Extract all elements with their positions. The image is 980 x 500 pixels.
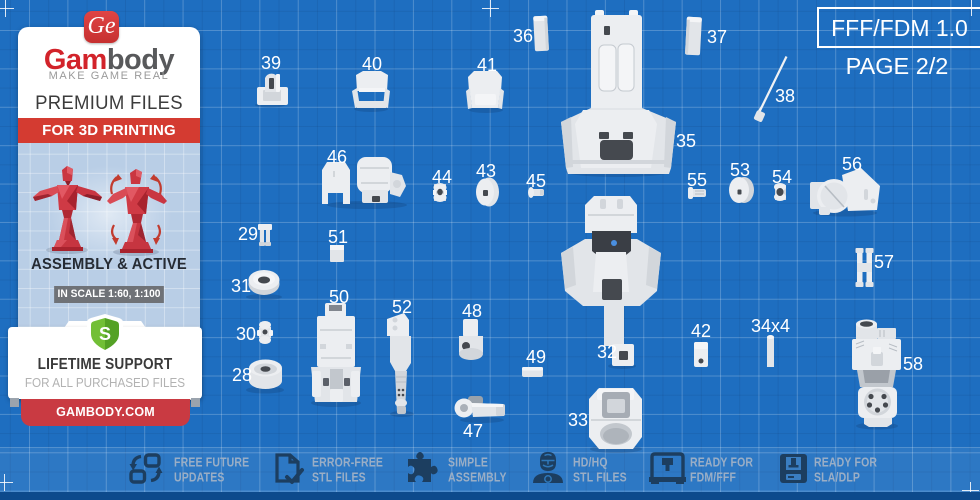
svg-text:53: 53 <box>730 160 750 180</box>
svg-text:28: 28 <box>232 365 252 385</box>
svg-text:50: 50 <box>329 287 349 307</box>
svg-text:37: 37 <box>707 27 727 47</box>
svg-text:57: 57 <box>874 252 894 272</box>
svg-text:49: 49 <box>526 347 546 367</box>
svg-text:29: 29 <box>238 224 258 244</box>
svg-text:34x4: 34x4 <box>751 316 790 336</box>
svg-text:54: 54 <box>772 167 792 187</box>
svg-text:38: 38 <box>775 86 795 106</box>
svg-text:31: 31 <box>231 276 251 296</box>
svg-text:32: 32 <box>597 342 617 362</box>
svg-text:52: 52 <box>392 297 412 317</box>
svg-text:33: 33 <box>568 410 588 430</box>
svg-text:41: 41 <box>477 55 497 75</box>
svg-text:S: S <box>99 324 111 344</box>
svg-text:55: 55 <box>687 170 707 190</box>
svg-text:58: 58 <box>903 354 923 374</box>
svg-text:42: 42 <box>691 321 711 341</box>
svg-text:51: 51 <box>328 227 348 247</box>
svg-text:44: 44 <box>432 167 452 187</box>
svg-text:36: 36 <box>513 26 533 46</box>
svg-text:48: 48 <box>462 301 482 321</box>
svg-text:47: 47 <box>463 421 483 441</box>
svg-text:46: 46 <box>327 147 347 167</box>
svg-text:56: 56 <box>842 154 862 174</box>
svg-text:35: 35 <box>676 131 696 151</box>
svg-text:39: 39 <box>261 53 281 73</box>
svg-text:40: 40 <box>362 54 382 74</box>
svg-text:43: 43 <box>476 161 496 181</box>
svg-text:30: 30 <box>236 324 256 344</box>
svg-text:45: 45 <box>526 171 546 191</box>
